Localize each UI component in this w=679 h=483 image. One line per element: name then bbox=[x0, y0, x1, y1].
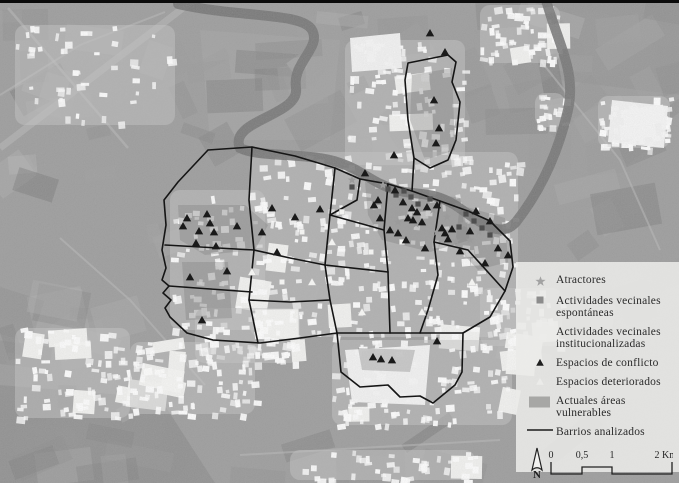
legend-item-espacios-conflicto: Espacios de conflicto bbox=[524, 357, 673, 369]
legend-label: Espacios de conflicto bbox=[556, 357, 659, 369]
vecinal-institucionalizada-marker bbox=[299, 229, 304, 234]
legend-label: Atractores bbox=[556, 274, 606, 286]
legend-item-areas-vulnerables: Actuales áreasvulnerables bbox=[524, 395, 673, 419]
legend-label: Actividades vecinalesinstitucionalizadas bbox=[556, 326, 661, 350]
north-arrow: N bbox=[525, 445, 547, 479]
svg-text:2 Km: 2 Km bbox=[655, 450, 673, 461]
vecinal-espontanea-marker bbox=[479, 225, 484, 230]
vecinal-espontanea-marker bbox=[471, 218, 476, 223]
vecinal-institucionalizada-marker bbox=[368, 249, 373, 254]
vecinal-institucionalizada-marker bbox=[279, 279, 284, 284]
legend-label: Espacios deteriorados bbox=[556, 376, 661, 388]
scale-and-north: N 0 0,5 1 2 Km bbox=[524, 445, 673, 479]
map-figure: Atractores Actividades vecinalesespontán… bbox=[0, 0, 679, 483]
vulnerable-area bbox=[358, 348, 415, 372]
vecinal-espontanea-marker bbox=[349, 184, 354, 189]
svg-text:N: N bbox=[533, 469, 541, 479]
square-light-icon bbox=[524, 327, 556, 335]
vecinal-institucionalizada-marker bbox=[429, 259, 434, 264]
area-swatch-icon bbox=[524, 396, 556, 408]
legend-label: Actividades vecinalesespontáneas bbox=[556, 295, 661, 319]
vulnerable-area bbox=[182, 262, 232, 320]
vecinal-institucionalizada-marker bbox=[339, 209, 344, 214]
legend-item-atractores: Atractores bbox=[524, 274, 673, 288]
svg-text:1: 1 bbox=[610, 450, 615, 461]
svg-text:0,5: 0,5 bbox=[576, 450, 589, 461]
vecinal-espontanea-marker bbox=[408, 194, 413, 199]
scale-bar: 0 0,5 1 2 Km bbox=[547, 449, 673, 479]
vecinal-espontanea-marker bbox=[427, 196, 432, 201]
vecinal-espontanea-marker bbox=[401, 188, 406, 193]
legend-item-barrios-analizados: Barrios analizados bbox=[524, 426, 673, 438]
legend-item-actividades-institucionalizadas: Actividades vecinalesinstitucionalizadas bbox=[524, 326, 673, 350]
legend-item-actividades-espontaneas: Actividades vecinalesespontáneas bbox=[524, 295, 673, 319]
line-icon bbox=[524, 427, 556, 433]
vecinal-espontanea-marker bbox=[463, 211, 468, 216]
vecinal-espontanea-marker bbox=[415, 201, 420, 206]
star-icon bbox=[524, 275, 556, 288]
vecinal-espontanea-marker bbox=[385, 186, 390, 191]
triangle-icon bbox=[524, 358, 556, 367]
legend-item-espacios-deteriorados: Espacios deteriorados bbox=[524, 376, 673, 388]
legend-label: Actuales áreasvulnerables bbox=[556, 395, 626, 419]
triangle-light-icon bbox=[524, 377, 556, 386]
legend-label: Barrios analizados bbox=[556, 426, 645, 438]
top-border bbox=[0, 0, 679, 3]
svg-text:0: 0 bbox=[549, 450, 554, 461]
square-icon bbox=[524, 296, 556, 304]
map-legend: Atractores Actividades vecinalesespontán… bbox=[516, 262, 679, 472]
vecinal-espontanea-marker bbox=[487, 232, 492, 237]
vecinal-espontanea-marker bbox=[456, 224, 461, 229]
